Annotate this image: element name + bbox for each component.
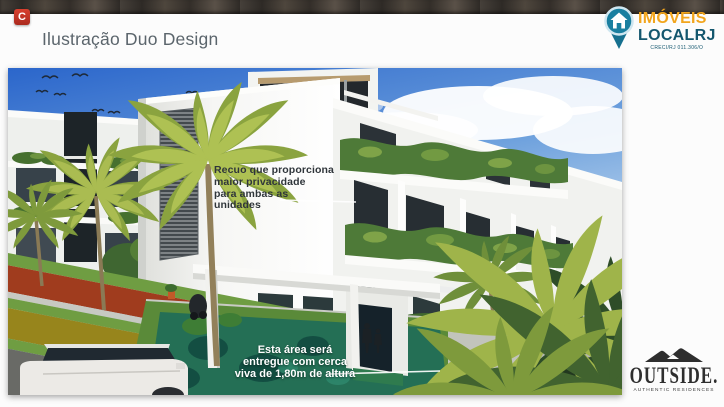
slide: C Ilustração Duo Design IMÓVEIS LOCALRJ … <box>0 0 724 407</box>
brand-word-localrj: LOCALRJ <box>638 28 716 44</box>
planter-plant <box>165 284 177 292</box>
render-illustration: Recuo que proporciona maior privacidade … <box>8 68 622 395</box>
brand-word-imoveis: IMÓVEIS <box>638 11 716 27</box>
outside-logo: OUTSIDE. AUTHENTIC RESIDENCES <box>628 347 720 393</box>
mountains-icon <box>643 347 705 363</box>
brand-badge-glyph: C <box>18 11 26 23</box>
scooter <box>189 294 207 320</box>
localrj-wordmark: IMÓVEIS LOCALRJ CRECI/RJ 011.306/O <box>638 11 716 51</box>
presentation-brand-icon: C <box>14 9 30 25</box>
outside-wordmark: OUTSIDE. <box>628 364 720 387</box>
creci-number: CRECI/RJ 011.306/O <box>638 46 716 51</box>
annotation-hedge-area: Esta área será entregue com cerca viva d… <box>188 344 402 380</box>
map-pin-house-icon <box>602 5 636 51</box>
annotation-privacy-setback: Recuo que proporciona maior privacidade … <box>214 165 334 212</box>
page-title: Ilustração Duo Design <box>42 29 218 50</box>
outside-tagline: AUTHENTIC RESIDENCES <box>628 388 720 393</box>
localrj-logo: IMÓVEIS LOCALRJ CRECI/RJ 011.306/O <box>602 5 716 51</box>
